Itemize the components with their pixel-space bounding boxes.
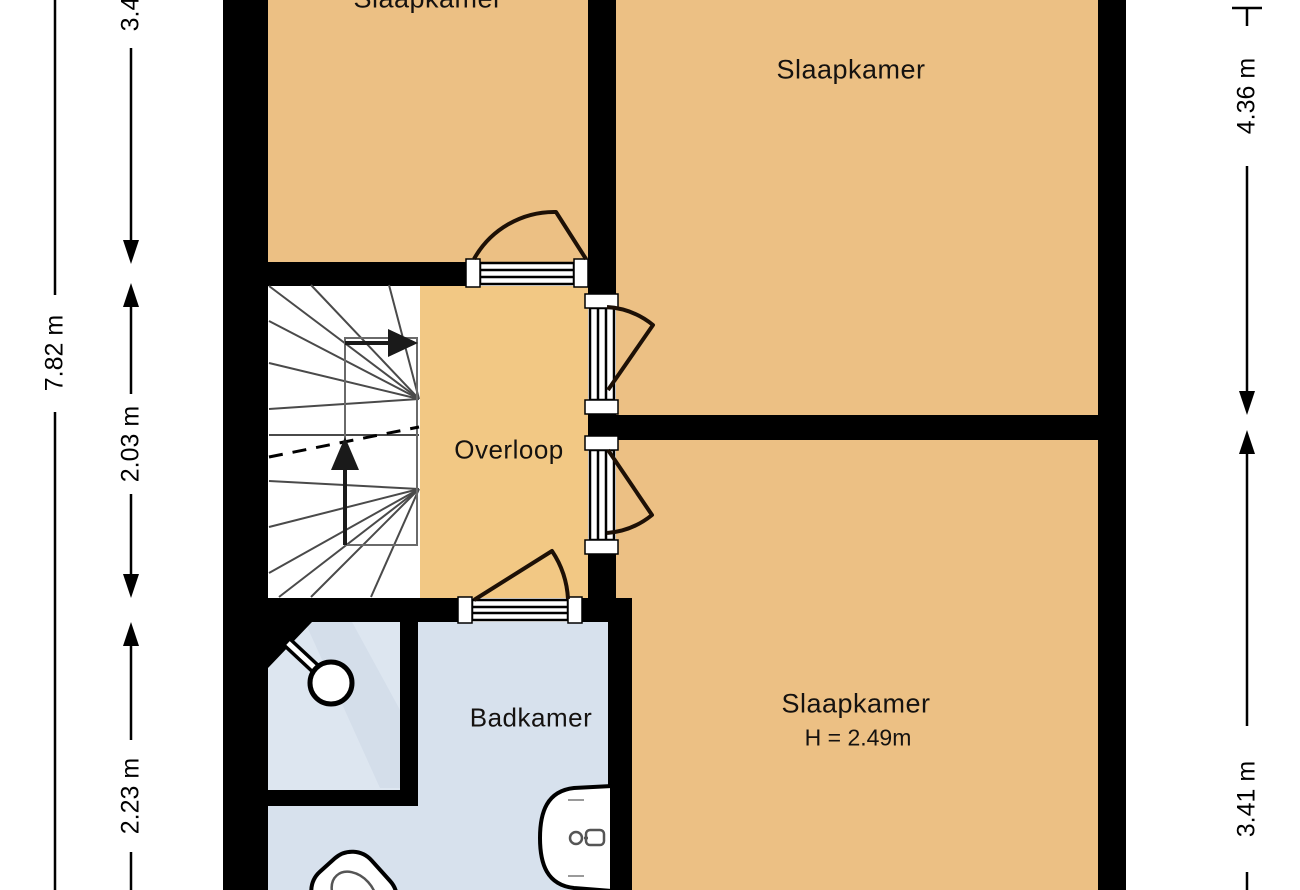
stair-direction-arrow-up xyxy=(331,437,359,545)
label-bedroom-bottom-right-height: H = 2.49m xyxy=(805,725,912,752)
door-swing-bedroom-top-left xyxy=(474,212,586,259)
floor-plan: Slaapkamer Slaapkamer Overloop Badkamer … xyxy=(0,0,1300,890)
door-threshold-bedroom-top-left xyxy=(466,259,588,287)
door-threshold-bedroom-bottom-right xyxy=(585,436,618,554)
dim-label-right-top: 4.36 m xyxy=(1233,58,1262,134)
bathtub-icon xyxy=(540,786,612,890)
door-threshold-bathroom xyxy=(458,597,582,623)
dim-label-left-top: 3.4 xyxy=(117,0,146,31)
label-bedroom-top-right: Slaapkamer xyxy=(776,55,925,86)
label-bedroom-top-left: Slaapkamer xyxy=(353,0,502,15)
label-bathroom: Badkamer xyxy=(470,703,593,734)
dimension-arrowheads-right xyxy=(1239,391,1255,454)
label-bedroom-bottom-right: Slaapkamer xyxy=(781,689,930,720)
dim-label-left-bottom: 2.23 m xyxy=(117,758,146,834)
dim-label-left-total: 7.82 m xyxy=(41,315,70,391)
plan-graphics xyxy=(0,0,1300,890)
dim-label-right-bottom: 3.41 m xyxy=(1233,761,1262,837)
door-swing-bathroom xyxy=(474,551,568,600)
label-landing: Overloop xyxy=(454,435,564,466)
dim-label-left-middle: 2.03 m xyxy=(117,406,146,482)
shower-sheen xyxy=(305,622,400,788)
door-threshold-bedroom-top-right xyxy=(585,294,618,414)
toilet-icon xyxy=(301,841,408,890)
